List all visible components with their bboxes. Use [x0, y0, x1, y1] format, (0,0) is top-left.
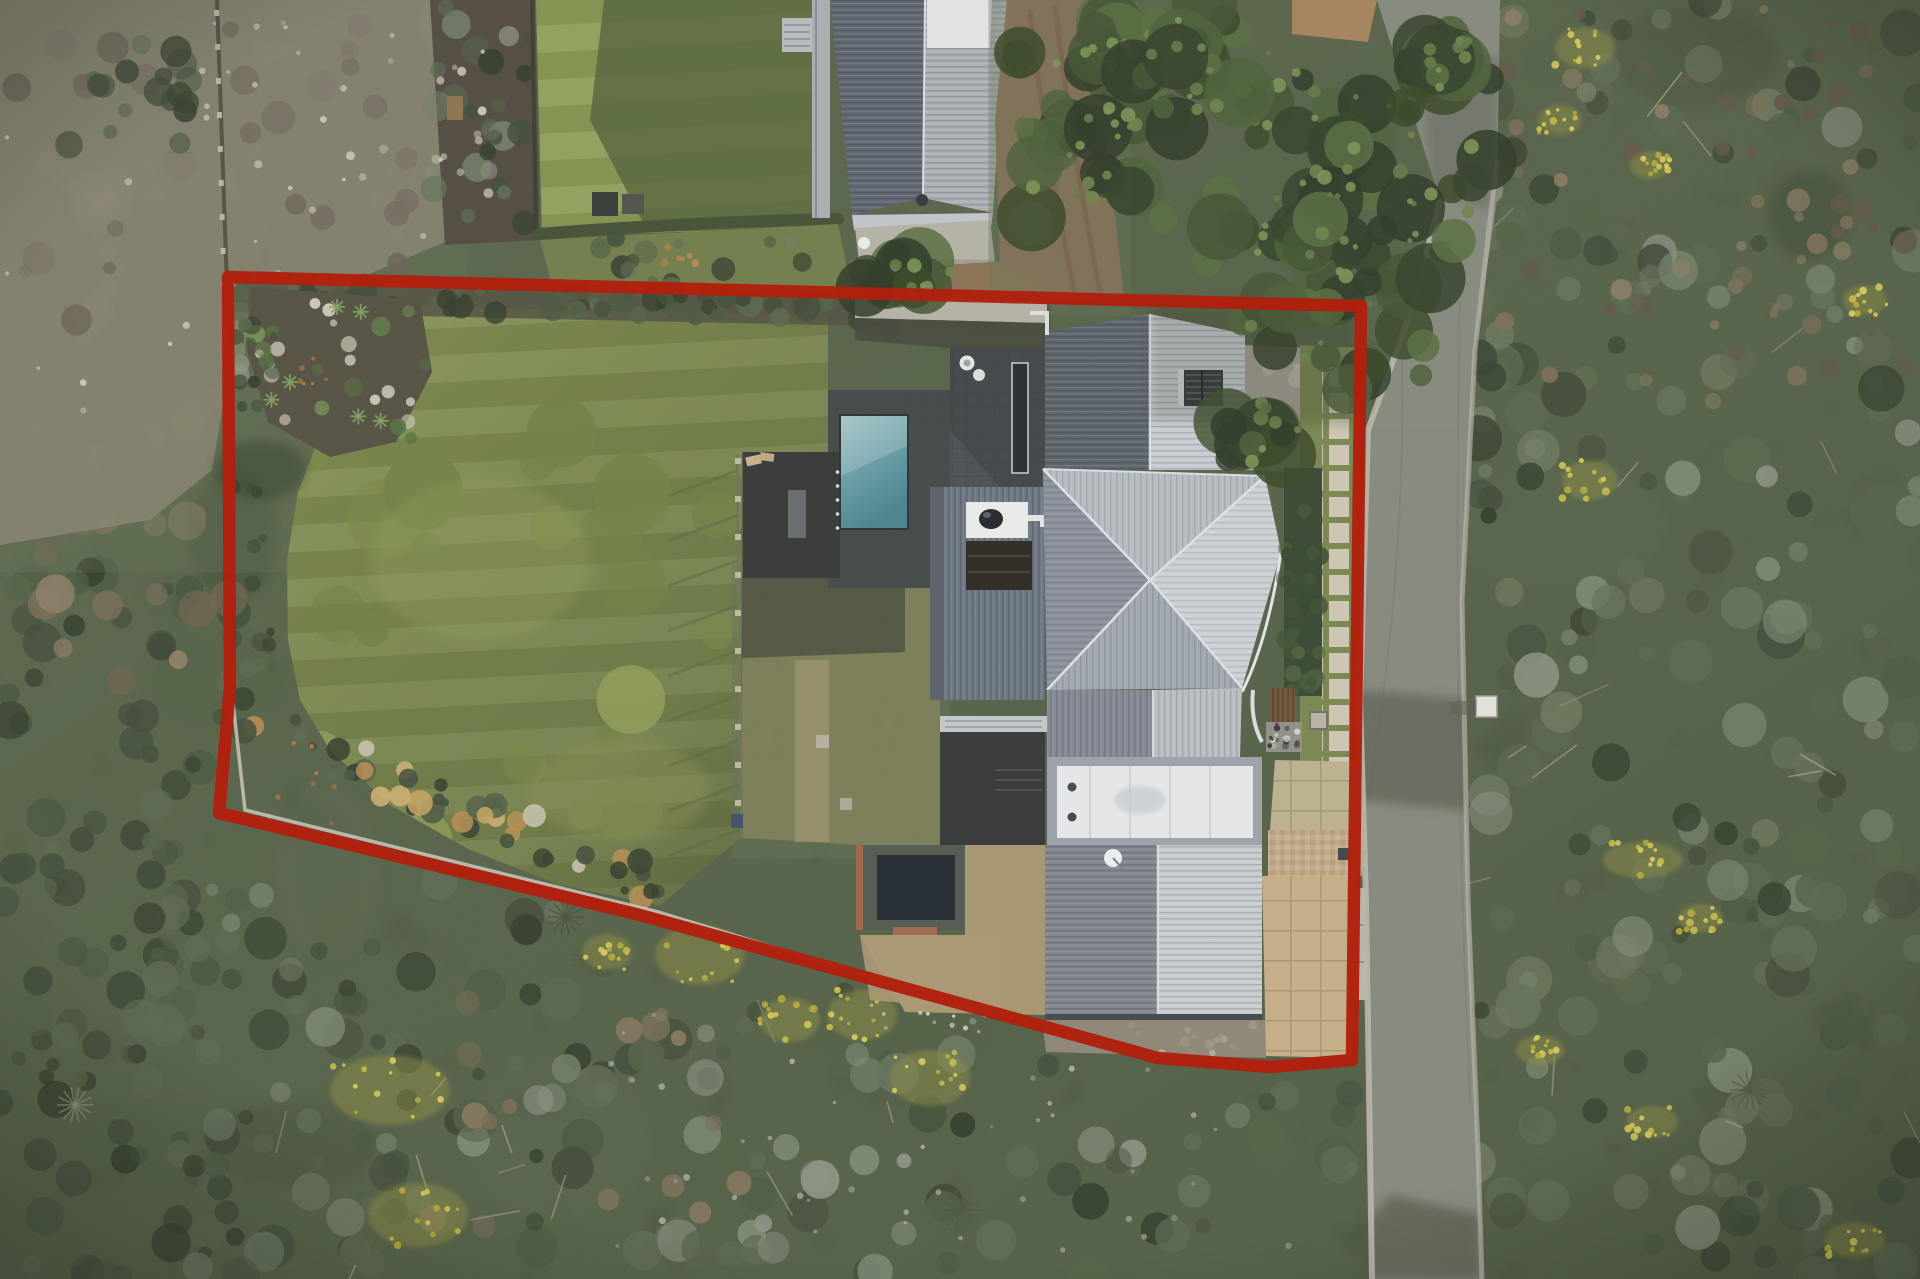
vignette — [0, 0, 1920, 1279]
aerial-photo — [0, 0, 1920, 1279]
aerial-photo-canvas — [0, 0, 1920, 1279]
